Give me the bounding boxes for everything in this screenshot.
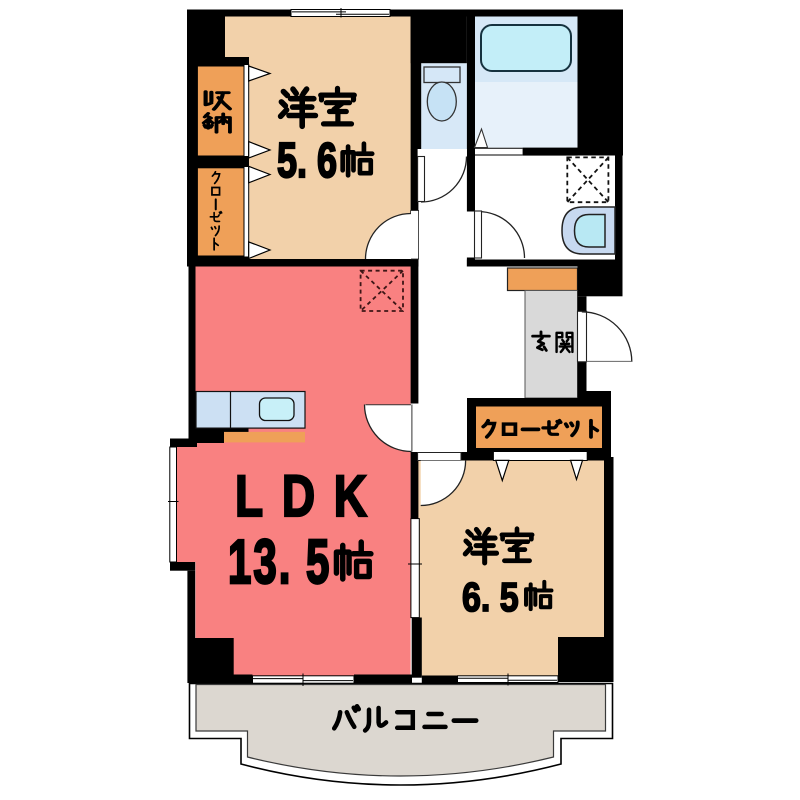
svg-text:5. 6: 5. 6 — [277, 134, 337, 189]
svg-text:6. 5: 6. 5 — [462, 574, 519, 620]
svg-text:13. 5: 13. 5 — [228, 528, 331, 597]
svg-text:LDK: LDK — [235, 464, 386, 530]
